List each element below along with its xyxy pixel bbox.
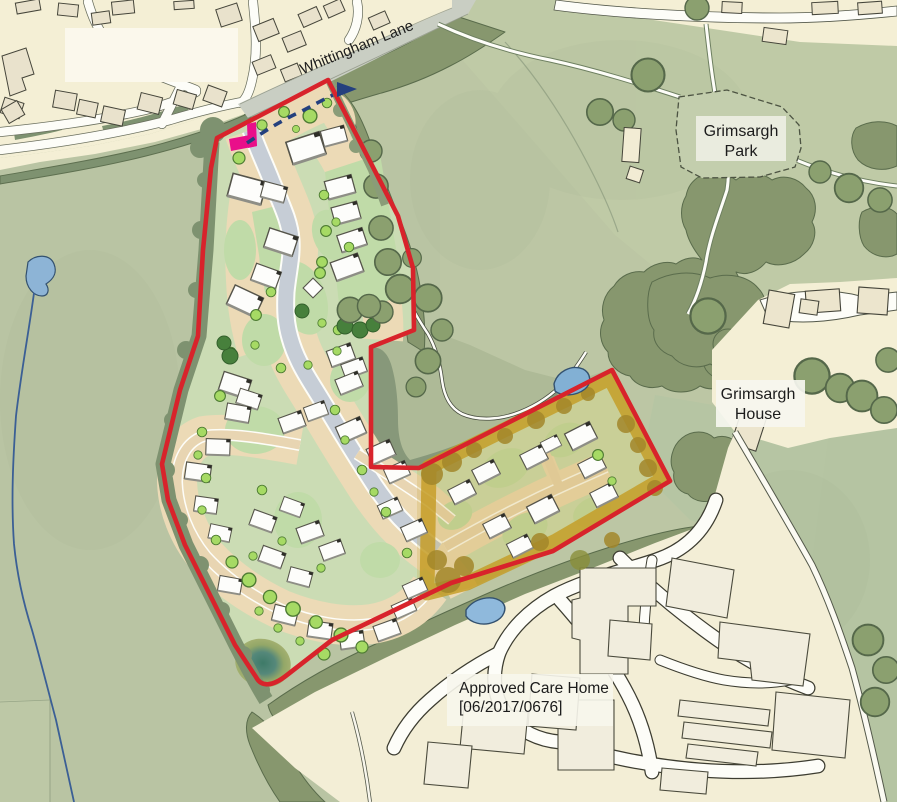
svg-text:Grimsargh: Grimsargh: [704, 123, 779, 140]
svg-text:[06/2017/0676]: [06/2017/0676]: [459, 699, 562, 716]
svg-text:Grimsargh: Grimsargh: [721, 386, 796, 403]
svg-text:Approved Care Home: Approved Care Home: [459, 680, 609, 697]
svg-text:Park: Park: [725, 143, 759, 160]
svg-text:House: House: [735, 406, 781, 423]
